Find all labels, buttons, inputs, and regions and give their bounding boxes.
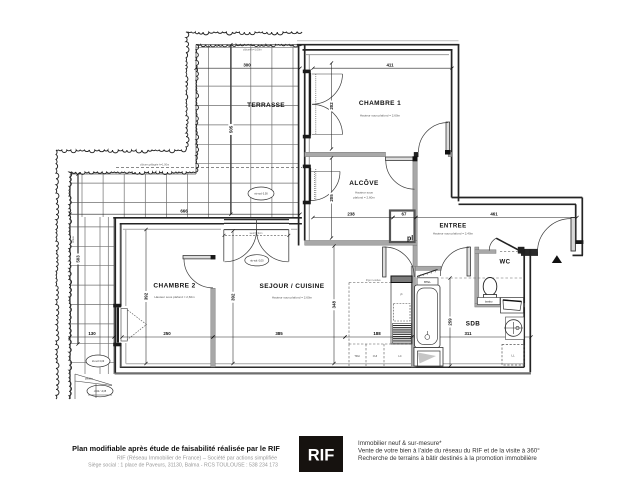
svg-text:130: 130 xyxy=(88,331,96,336)
svg-text:Hauteur sous plafond = 2,60m: Hauteur sous plafond = 2,60m xyxy=(154,295,195,299)
svg-text:67: 67 xyxy=(402,212,407,217)
svg-text:CUI: CUI xyxy=(373,354,378,358)
svg-text:666: 666 xyxy=(180,208,188,213)
svg-text:238: 238 xyxy=(347,212,355,217)
svg-text:259: 259 xyxy=(448,318,453,326)
svg-text:461: 461 xyxy=(490,212,498,217)
svg-text:WC: WC xyxy=(500,259,511,266)
svg-text:Hauteur sous plafond = 2,60m: Hauteur sous plafond = 2,60m xyxy=(272,296,313,300)
svg-text:Hauteur sous: Hauteur sous xyxy=(355,191,373,195)
svg-text:CHAMBRE 2: CHAMBRE 2 xyxy=(153,283,195,290)
svg-text:CHAMBRE 1: CHAMBRE 1 xyxy=(359,100,401,107)
svg-text:pl: pl xyxy=(407,236,413,243)
svg-text:SDB: SDB xyxy=(466,321,481,328)
svg-text:P: P xyxy=(400,293,402,297)
svg-text:niv sol: 0,00: niv sol: 0,00 xyxy=(254,193,268,196)
svg-text:392: 392 xyxy=(231,293,236,301)
svg-text:pavillon: pavillon xyxy=(85,378,94,381)
svg-text:LC: LC xyxy=(398,354,401,358)
svg-text:Recherche de terrains à bâtir: Recherche de terrains à bâtir destinés à… xyxy=(358,455,537,462)
svg-text:348: 348 xyxy=(332,301,337,309)
svg-text:Vente de votre bien à l’aide d: Vente de votre bien à l’aide du réseau d… xyxy=(358,447,540,454)
svg-text:RIF: RIF xyxy=(308,447,335,465)
svg-text:205: 205 xyxy=(329,194,334,202)
svg-text:clôture: clôture xyxy=(72,235,75,243)
svg-text:Hauteur sous plafond = 2,60m: Hauteur sous plafond = 2,60m xyxy=(360,114,401,118)
svg-text:clôture h=1,00m: clôture h=1,00m xyxy=(243,48,262,52)
svg-text:TRH: TRH xyxy=(354,354,359,358)
svg-text:TERRASSE: TERRASSE xyxy=(247,102,285,109)
svg-text:Immobilier neuf & sur-mesure*: Immobilier neuf & sur-mesure* xyxy=(358,440,442,447)
svg-text:Plan modifiable après étude de: Plan modifiable après étude de faisabili… xyxy=(72,444,280,453)
svg-text:niv sol: 0,00: niv sol: 0,00 xyxy=(92,361,105,363)
svg-text:niv sol: 0,00: niv sol: 0,00 xyxy=(250,259,264,262)
svg-text:392: 392 xyxy=(144,292,149,300)
svg-text:Hauteur sous plafond = 2,40m: Hauteur sous plafond = 2,40m xyxy=(433,232,474,236)
svg-text:300: 300 xyxy=(243,62,251,67)
svg-text:plafond = 2,60m: plafond = 2,60m xyxy=(353,196,375,200)
svg-text:ALCÔVE: ALCÔVE xyxy=(349,178,379,187)
svg-text:311: 311 xyxy=(464,331,472,336)
svg-text:385: 385 xyxy=(275,331,283,336)
svg-text:lavabo: lavabo xyxy=(485,300,493,303)
svg-text:250: 250 xyxy=(163,331,171,336)
svg-text:clôture grillagée h=1,00m: clôture grillagée h=1,00m xyxy=(140,162,169,166)
svg-text:RIF (Réseau Immobilier de Fran: RIF (Réseau Immobilier de France) – Soci… xyxy=(117,456,277,462)
svg-text:SEJOUR / CUISINE: SEJOUR / CUISINE xyxy=(260,283,325,290)
svg-text:202: 202 xyxy=(329,102,334,110)
svg-text:BTEL: BTEL xyxy=(424,280,431,284)
svg-text:LL: LL xyxy=(511,354,515,358)
svg-text:ENTREE: ENTREE xyxy=(439,223,466,230)
svg-text:frigo m-ondes: frigo m-ondes xyxy=(366,279,381,282)
svg-text:505: 505 xyxy=(228,125,233,133)
svg-text:503: 503 xyxy=(76,255,81,263)
svg-text:Siège social : 1 place de Pave: Siège social : 1 place de Paveurs, 31130… xyxy=(88,463,278,469)
svg-text:188: 188 xyxy=(373,331,381,336)
svg-text:411: 411 xyxy=(386,62,394,67)
